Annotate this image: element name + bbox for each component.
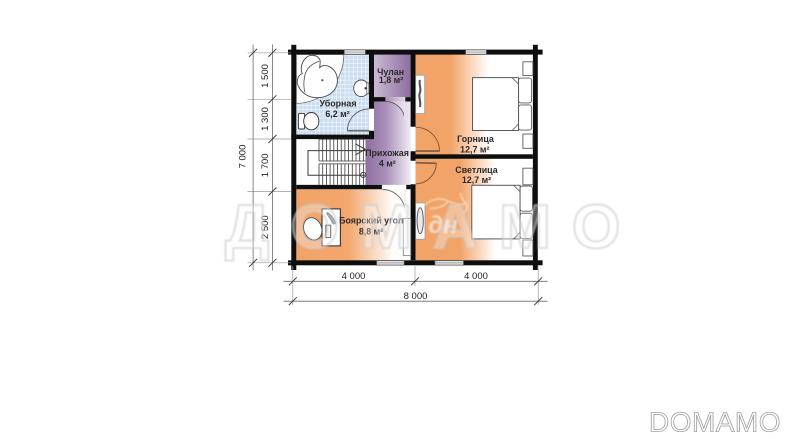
svg-text:1 700: 1 700: [260, 153, 271, 177]
svg-text:1,8 м²: 1,8 м²: [379, 75, 403, 85]
svg-text:ДОМАМО: ДОМАМО: [225, 192, 639, 262]
svg-text:Уборная: Уборная: [319, 99, 356, 109]
svg-text:Горница: Горница: [457, 134, 494, 144]
svg-text:7 000: 7 000: [238, 145, 249, 169]
svg-text:8 000: 8 000: [404, 291, 428, 302]
svg-text:6,2 м²: 6,2 м²: [325, 109, 349, 119]
svg-text:1 300: 1 300: [260, 107, 271, 131]
svg-text:4 000: 4 000: [464, 271, 488, 282]
svg-text:12,7 м²: 12,7 м²: [462, 175, 491, 185]
svg-text:DOMAMO: DOMAMO: [649, 407, 782, 438]
svg-text:4 м²: 4 м²: [379, 158, 396, 168]
svg-text:12,7 м²: 12,7 м²: [460, 144, 489, 154]
svg-text:Прихожая: Прихожая: [365, 148, 409, 158]
svg-text:Светлица: Светлица: [455, 165, 497, 175]
svg-text:1 500: 1 500: [260, 64, 271, 88]
svg-text:4 000: 4 000: [342, 271, 366, 282]
